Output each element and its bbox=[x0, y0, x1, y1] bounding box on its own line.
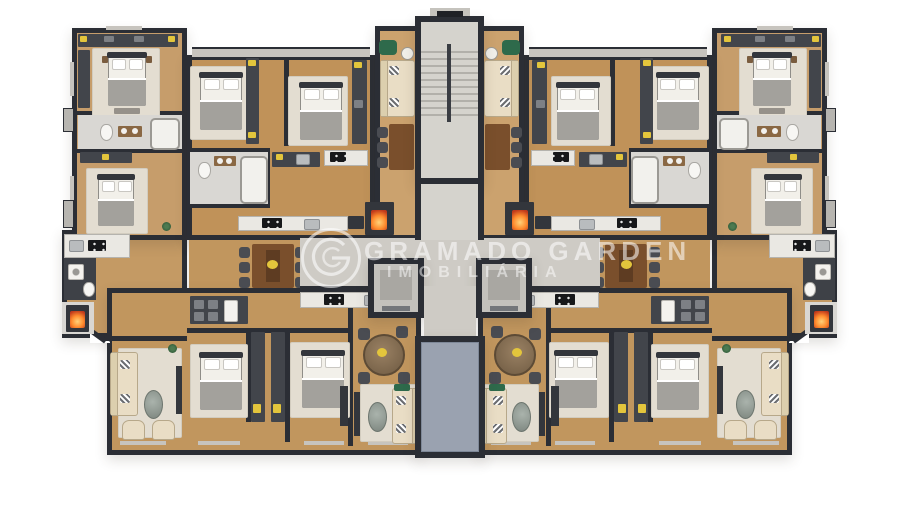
cooktop bbox=[88, 240, 106, 251]
stair-landing bbox=[421, 184, 478, 240]
dining-chair bbox=[239, 277, 250, 288]
shelf-box bbox=[276, 154, 283, 160]
cabinet-module bbox=[194, 312, 204, 321]
bathtub bbox=[631, 156, 659, 204]
bed-headboard bbox=[656, 72, 700, 78]
bed bbox=[753, 54, 791, 106]
toilet bbox=[786, 124, 799, 141]
bed bbox=[657, 74, 699, 130]
tv-console bbox=[176, 366, 182, 414]
bed bbox=[657, 354, 699, 410]
dining-chair bbox=[239, 247, 250, 258]
bathroom-vanity bbox=[214, 156, 236, 166]
floor-plan-stage: GRAMADO GARDEN IMOBILIÁRIA bbox=[0, 0, 900, 513]
window bbox=[120, 441, 166, 445]
sofa-pillow bbox=[120, 394, 130, 403]
sofa-pillow bbox=[769, 394, 779, 403]
bed-blanket bbox=[200, 100, 242, 130]
table-centerpiece bbox=[267, 260, 278, 269]
plant bbox=[162, 222, 171, 231]
armchair bbox=[754, 420, 777, 440]
window bbox=[198, 441, 240, 445]
wall-segment bbox=[712, 336, 794, 341]
shelf-box bbox=[248, 60, 256, 66]
bed bbox=[200, 74, 242, 130]
sink-basin bbox=[676, 158, 682, 164]
tv-console bbox=[717, 366, 723, 414]
dining-chair bbox=[649, 277, 660, 288]
kitchen-sink bbox=[815, 240, 830, 252]
cabinet-module bbox=[208, 300, 218, 309]
coffee-table bbox=[144, 390, 163, 419]
washing-machine bbox=[68, 264, 84, 280]
toilet bbox=[804, 282, 816, 297]
cooktop bbox=[793, 240, 811, 251]
bed-blanket bbox=[108, 78, 146, 106]
bed-pillow bbox=[223, 359, 239, 370]
bed-headboard bbox=[199, 352, 243, 358]
bed-pillow bbox=[112, 59, 126, 70]
bed-bench bbox=[114, 108, 140, 114]
bed-headboard bbox=[764, 174, 802, 180]
window bbox=[659, 441, 701, 445]
bed-pillow bbox=[679, 79, 695, 90]
bed-pillow bbox=[223, 79, 239, 90]
central-core bbox=[300, 0, 600, 513]
bed bbox=[108, 54, 146, 106]
bed-pillow bbox=[660, 79, 676, 90]
cabinet-module bbox=[681, 300, 691, 309]
cooktop bbox=[262, 218, 282, 228]
dining-chair bbox=[239, 262, 250, 273]
toilet bbox=[100, 124, 113, 141]
elevator-interior bbox=[488, 270, 520, 300]
bed-headboard bbox=[107, 52, 147, 58]
closet-box bbox=[618, 404, 626, 413]
bed-blanket bbox=[765, 199, 801, 226]
bed-headboard bbox=[199, 72, 243, 78]
shelf-box bbox=[790, 154, 797, 160]
wardrobe bbox=[78, 50, 90, 108]
sink-basin bbox=[226, 158, 232, 164]
closet-box bbox=[273, 404, 281, 413]
shelf-box bbox=[104, 36, 114, 42]
corridor-hall bbox=[300, 238, 600, 288]
cabinet-module bbox=[194, 300, 204, 309]
plant bbox=[168, 344, 177, 353]
shelf-box bbox=[616, 154, 623, 160]
bed-pillow bbox=[784, 181, 798, 192]
dining-chair bbox=[649, 247, 660, 258]
fireplace-fire bbox=[70, 311, 85, 328]
bed-pillow bbox=[204, 79, 220, 90]
bathroom-vanity bbox=[663, 156, 685, 166]
wardrobe bbox=[809, 50, 821, 108]
ac-unit bbox=[825, 108, 836, 132]
sink-basin bbox=[667, 158, 673, 164]
wall-segment bbox=[188, 204, 270, 208]
elevator-interior bbox=[380, 270, 412, 300]
sofa-pillow bbox=[769, 360, 779, 369]
bed-blanket bbox=[657, 100, 699, 130]
toilet bbox=[83, 282, 95, 297]
shelf-box bbox=[80, 36, 87, 42]
bed-blanket bbox=[753, 78, 791, 106]
elevator-door bbox=[382, 306, 410, 311]
dining-chair bbox=[649, 262, 660, 273]
sofa-pillow bbox=[120, 360, 130, 369]
coffee-table bbox=[736, 390, 755, 419]
ac-unit bbox=[63, 108, 74, 132]
shelf-box bbox=[724, 36, 731, 42]
bed-pillow bbox=[679, 359, 695, 370]
bed-pillow bbox=[204, 359, 220, 370]
shower-tray bbox=[719, 118, 749, 150]
window bbox=[106, 26, 142, 30]
bathroom-vanity bbox=[118, 126, 142, 137]
bed-blanket bbox=[200, 380, 242, 410]
cabinet-module bbox=[695, 300, 705, 309]
bed bbox=[98, 176, 134, 226]
service-shaft bbox=[421, 342, 479, 452]
bed-blanket bbox=[98, 199, 134, 226]
bed-bench bbox=[759, 108, 785, 114]
toilet bbox=[198, 162, 211, 179]
shelf-box bbox=[755, 36, 765, 42]
sink-basin bbox=[772, 128, 778, 134]
kitchen-sink bbox=[69, 240, 84, 252]
armchair bbox=[122, 420, 145, 440]
wall-segment bbox=[187, 236, 303, 240]
sink-basin bbox=[132, 128, 138, 134]
bed-pillow bbox=[767, 181, 781, 192]
wall-segment bbox=[478, 184, 484, 240]
shower-tray bbox=[150, 118, 180, 150]
bed-pillow bbox=[129, 59, 143, 70]
plant bbox=[728, 222, 737, 231]
bed-pillow bbox=[102, 181, 116, 192]
sink-basin bbox=[121, 128, 127, 134]
wall-segment bbox=[596, 236, 712, 240]
window bbox=[70, 62, 74, 96]
shelf-box bbox=[168, 36, 175, 42]
ac-unit bbox=[825, 200, 836, 228]
bed-headboard bbox=[656, 352, 700, 358]
washing-machine bbox=[815, 264, 831, 280]
sink-basin bbox=[761, 128, 767, 134]
bed-pillow bbox=[773, 59, 787, 70]
stair-divider bbox=[447, 44, 451, 122]
shelf-box bbox=[248, 132, 256, 138]
bed-pillow bbox=[660, 359, 676, 370]
bathtub bbox=[240, 156, 268, 204]
armchair bbox=[724, 420, 747, 440]
shelf-box bbox=[785, 36, 795, 42]
bathroom-vanity bbox=[757, 126, 781, 137]
bed-pillow bbox=[118, 181, 132, 192]
ac-unit bbox=[63, 200, 74, 228]
bed-headboard bbox=[97, 174, 135, 180]
nightstand bbox=[791, 56, 797, 63]
bed-blanket bbox=[657, 380, 699, 410]
shelf-box bbox=[102, 154, 109, 160]
table-centerpiece bbox=[621, 260, 632, 269]
wall-segment bbox=[629, 204, 711, 208]
armchair bbox=[152, 420, 175, 440]
shelf-box bbox=[643, 132, 651, 138]
sink-basin bbox=[217, 158, 223, 164]
bed bbox=[200, 354, 242, 410]
wardrobe bbox=[78, 34, 178, 47]
sofa-back bbox=[111, 353, 118, 415]
window bbox=[825, 62, 829, 96]
fireplace-fire bbox=[814, 311, 829, 328]
bed-headboard bbox=[752, 52, 792, 58]
kitchen-appliance bbox=[224, 300, 238, 322]
shelf-box bbox=[643, 60, 651, 66]
sofa-back bbox=[781, 353, 788, 415]
shelf-box bbox=[812, 36, 819, 42]
cabinet-module bbox=[681, 312, 691, 321]
bed-pillow bbox=[756, 59, 770, 70]
kitchen-appliance bbox=[661, 300, 675, 322]
wall-segment bbox=[105, 336, 187, 341]
shelf-box bbox=[134, 36, 144, 42]
cabinet-module bbox=[695, 312, 705, 321]
toilet bbox=[688, 162, 701, 179]
window bbox=[757, 26, 793, 30]
bed bbox=[765, 176, 801, 226]
elevator-door bbox=[490, 306, 518, 311]
corridor-spur bbox=[424, 286, 476, 340]
cooktop bbox=[617, 218, 637, 228]
wardrobe bbox=[721, 34, 821, 47]
closet-box bbox=[638, 404, 646, 413]
entry-door bbox=[437, 11, 463, 17]
closet-box bbox=[253, 404, 261, 413]
window bbox=[733, 441, 779, 445]
nightstand bbox=[146, 56, 152, 63]
plant bbox=[722, 344, 731, 353]
cabinet-module bbox=[208, 312, 218, 321]
